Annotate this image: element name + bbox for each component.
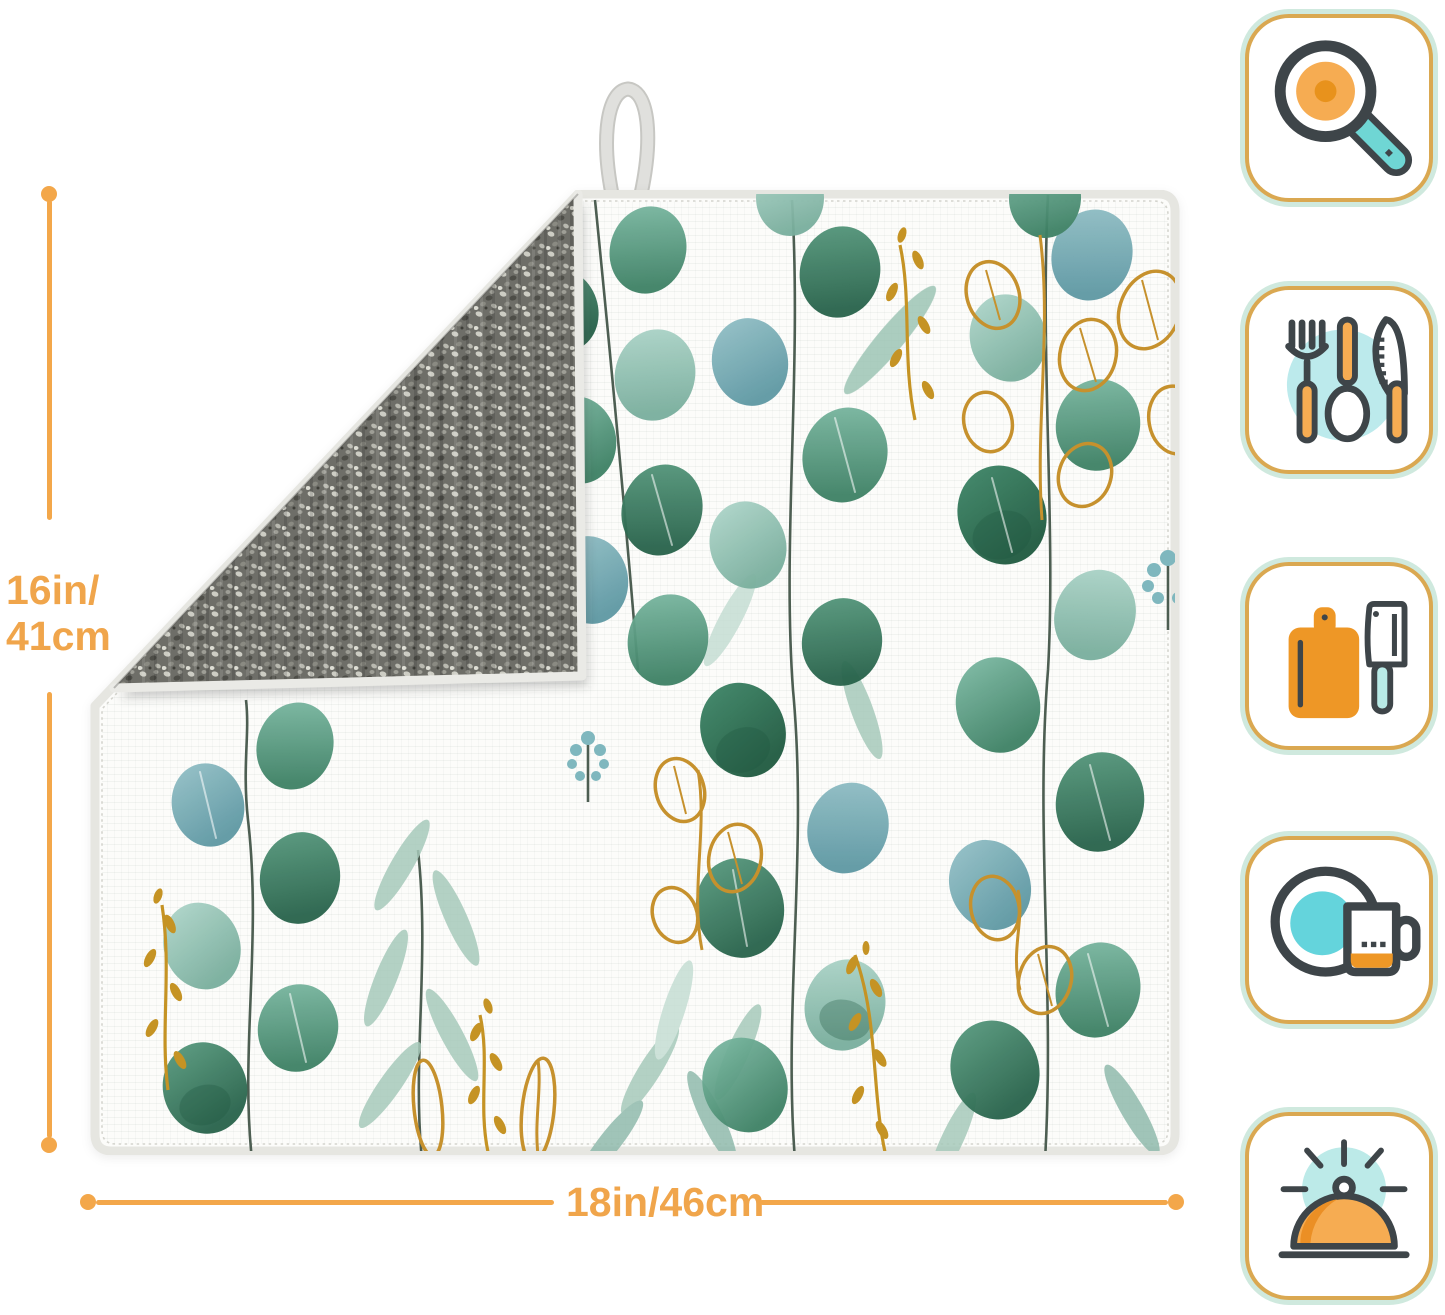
hanging-loop (596, 78, 666, 198)
frying-pan-icon (1255, 24, 1423, 192)
dimension-dot (1168, 1194, 1184, 1210)
icon-badge-frying-pan (1245, 14, 1433, 202)
icon-badge-serving-cloche (1245, 1112, 1433, 1300)
dimension-dot (80, 1194, 96, 1210)
icon-badge-plate-and-mug (1245, 836, 1433, 1024)
folded-corner (114, 194, 582, 688)
vertical-dimension-line (47, 200, 52, 520)
horizontal-dimension-line (96, 1200, 554, 1205)
utensils-icon (1255, 296, 1423, 464)
height-label-line2: 41cm (6, 614, 111, 660)
vertical-dimension-line (47, 692, 52, 1138)
icon-badge-cutting-board (1245, 562, 1433, 750)
icon-badge-utensils (1245, 286, 1433, 474)
height-label-line1: 16in/ (6, 568, 111, 614)
plate-and-mug-icon (1255, 846, 1423, 1014)
horizontal-dimension-line (760, 1200, 1168, 1205)
drying-mat (90, 190, 1180, 1155)
height-label: 16in/ 41cm (6, 568, 111, 660)
width-label: 18in/46cm (566, 1180, 764, 1226)
product-image: 16in/ 41cm 18in/46cm (0, 0, 1445, 1315)
dimension-dot (41, 1137, 57, 1153)
cutting-board-icon (1255, 572, 1423, 740)
serving-cloche-icon (1255, 1122, 1423, 1290)
